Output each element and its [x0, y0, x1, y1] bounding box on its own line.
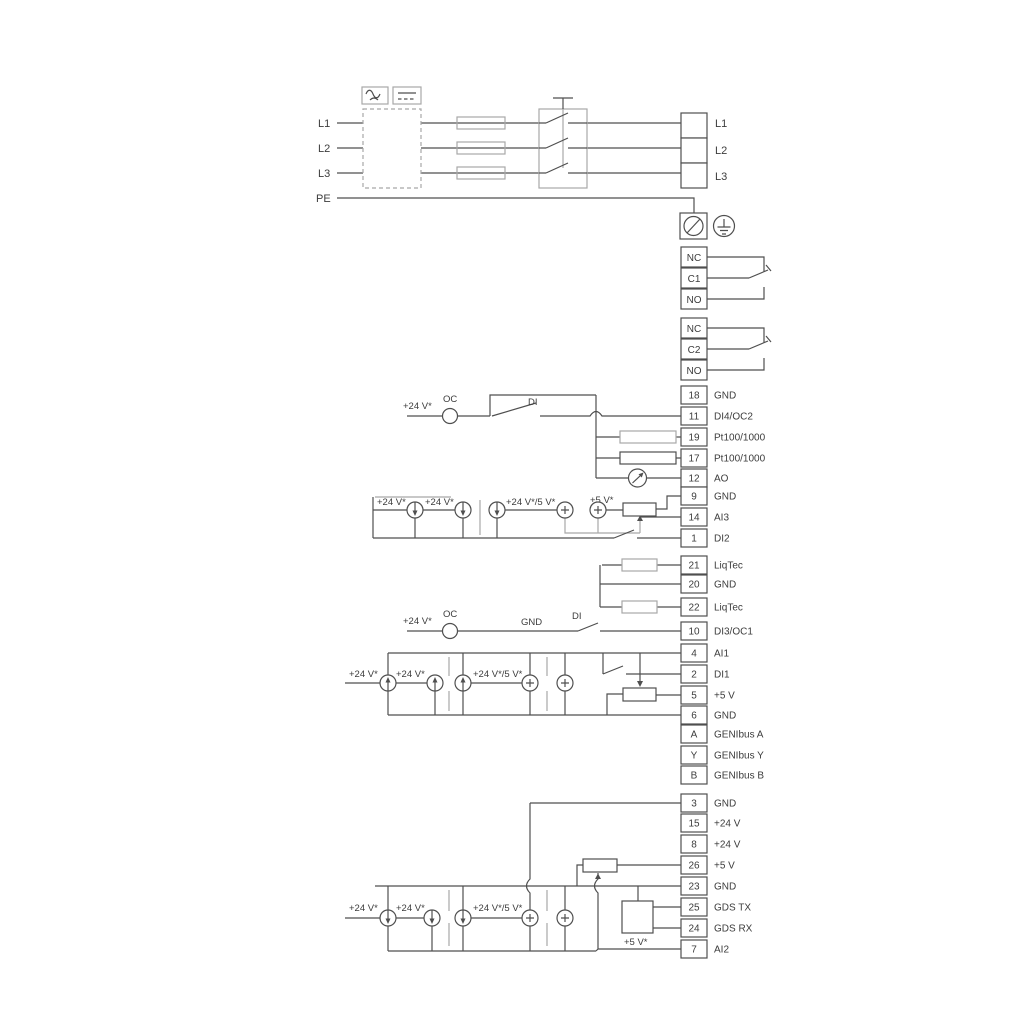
relay2-nc: NC: [687, 324, 701, 335]
di4-oc-label: OC: [443, 394, 457, 405]
diagram-canvas: L1 L2 L3 PE L1 L2 L3 NC C1 NO NC C2 NO: [0, 0, 1024, 1024]
di4-24v-label: +24 V*: [403, 401, 432, 412]
emc-filter-box: [363, 109, 421, 188]
terminal-label: AO: [714, 474, 729, 485]
terminal-label: GND: [714, 391, 736, 402]
ai2-5v-label: +5 V*: [624, 937, 648, 948]
mains-label-l2: L2: [318, 143, 330, 155]
terminal-number: 19: [688, 433, 700, 444]
terminal-label: GND: [714, 882, 736, 893]
current-source-icons: [380, 502, 606, 926]
terminal-number: 7: [691, 945, 697, 956]
terminal-number: 25: [688, 903, 700, 914]
terminal-label: GDS RX: [714, 924, 753, 935]
terminal-number: 12: [688, 474, 700, 485]
terminal-number: 24: [688, 924, 700, 935]
wiring-diagram: L1 L2 L3 PE L1 L2 L3 NC C1 NO NC C2 NO: [0, 0, 1024, 1024]
terminal-number: 5: [691, 691, 697, 702]
terminal-label: +24 V: [714, 840, 741, 851]
potentiometer-icon: [623, 688, 656, 701]
terminal-label: Pt100/1000: [714, 454, 766, 465]
terminal-label: GND: [714, 580, 736, 591]
pe-terminal-icon: [680, 213, 707, 239]
ai2-24v-label-2: +24 V*: [396, 903, 425, 914]
terminal-number: 6: [691, 711, 697, 722]
earth-ground-icon: [714, 216, 735, 237]
potentiometer-icon: [583, 859, 617, 872]
terminal-label: GND: [714, 492, 736, 503]
terminal-number: 20: [688, 580, 700, 591]
ai3-24v-5v-label: +24 V*/5 V*: [506, 497, 556, 508]
relay1-c1: C1: [688, 274, 701, 285]
di3-di-label: DI: [572, 611, 582, 622]
ai3-24v-label-1: +24 V*: [377, 497, 406, 508]
mains-terminal-block: [681, 113, 707, 188]
terminal-number: 1: [691, 534, 697, 545]
terminal-number: 9: [691, 492, 697, 503]
terminal-number: 4: [691, 649, 697, 660]
terminal-number: 15: [688, 819, 700, 830]
di3-oc-label: OC: [443, 609, 457, 620]
ai2-section: +24 V* +24 V* +24 V*/5 V* +5 V*: [345, 803, 681, 951]
ai1-24v-label-2: +24 V*: [396, 669, 425, 680]
terminal-label: Pt100/1000: [714, 433, 766, 444]
mains-label-l1: L1: [318, 118, 330, 130]
out-label-l2: L2: [715, 145, 727, 157]
open-collector-icon: [443, 624, 458, 639]
ai3-24v-label-2: +24 V*: [425, 497, 454, 508]
relay1-block: NC C1 NO: [681, 247, 771, 309]
terminal-label: GENIbus Y: [714, 751, 764, 762]
terminal-label: DI1: [714, 670, 730, 681]
terminal-label: AI3: [714, 513, 729, 524]
terminal-label: LiqTec: [714, 603, 743, 614]
gds-sensor-box: [622, 901, 653, 933]
dc-symbol-icon: [393, 87, 421, 104]
terminal-label: DI4/OC2: [714, 412, 753, 423]
terminal-number: 22: [688, 603, 700, 614]
terminal-number: 21: [688, 561, 700, 572]
terminal-number: 26: [688, 861, 700, 872]
relay1-no: NO: [687, 295, 702, 306]
liqtec-sensor-icon: [622, 601, 657, 613]
terminal-label: +5 V: [714, 861, 735, 872]
analog-output-meter-icon: [629, 469, 647, 487]
terminal-label: GENIbus B: [714, 771, 764, 782]
terminal-number: 14: [688, 513, 700, 524]
relay2-no: NO: [687, 366, 702, 377]
out-label-l1: L1: [715, 118, 727, 130]
terminal-number: 23: [688, 882, 700, 893]
ai1-24v-5v-label: +24 V*/5 V*: [473, 669, 523, 680]
ai2-24v-5v-label: +24 V*/5 V*: [473, 903, 523, 914]
ai1-24v-label-1: +24 V*: [349, 669, 378, 680]
terminal-label: GND: [714, 711, 736, 722]
terminal-number: B: [691, 771, 698, 782]
terminal-label: LiqTec: [714, 561, 743, 572]
terminal-label: GENIbus A: [714, 730, 764, 741]
terminal-number: 10: [688, 627, 700, 638]
terminal-label: GDS TX: [714, 903, 751, 914]
terminal-label: AI1: [714, 649, 729, 660]
pt100-resistor-icon: [620, 452, 676, 464]
terminal-label: DI3/OC1: [714, 627, 753, 638]
di4-di-label: DI: [528, 397, 538, 408]
terminal-number: 2: [691, 670, 697, 681]
di4-section: +24 V* OC DI: [403, 394, 681, 487]
terminal-label: AI2: [714, 945, 729, 956]
ai2-24v-label-1: +24 V*: [349, 903, 378, 914]
out-label-l3: L3: [715, 171, 727, 183]
terminal-strip: 18GND11DI4/OC219Pt100/100017Pt100/100012…: [681, 386, 766, 958]
terminal-number: 8: [691, 840, 697, 851]
di3-24v-label: +24 V*: [403, 616, 432, 627]
di3-gnd-label: GND: [521, 617, 542, 628]
liqtec-section: [600, 559, 681, 613]
relay2-c2: C2: [688, 345, 701, 356]
terminal-label: DI2: [714, 534, 730, 545]
main-switch-icon: [539, 98, 587, 188]
open-collector-icon: [443, 409, 458, 424]
terminal-label: +5 V: [714, 691, 735, 702]
mains-label-pe: PE: [316, 193, 331, 205]
terminal-number: A: [691, 730, 698, 741]
terminal-label: GND: [714, 799, 736, 810]
liqtec-sensor-icon: [622, 559, 657, 571]
relay1-nc: NC: [687, 253, 701, 264]
relay2-block: NC C2 NO: [681, 318, 771, 380]
mains-section: L1 L2 L3 PE L1 L2 L3: [316, 87, 735, 239]
terminal-number: 17: [688, 454, 700, 465]
ac-symbol-icon: [362, 87, 388, 104]
terminal-number: Y: [691, 751, 698, 762]
potentiometer-icon: [623, 503, 656, 516]
terminal-number: 3: [691, 799, 697, 810]
pt100-resistor-icon: [620, 431, 676, 443]
terminal-label: +24 V: [714, 819, 741, 830]
terminal-number: 18: [688, 391, 700, 402]
mains-label-l3: L3: [318, 168, 330, 180]
terminal-number: 11: [689, 412, 700, 423]
